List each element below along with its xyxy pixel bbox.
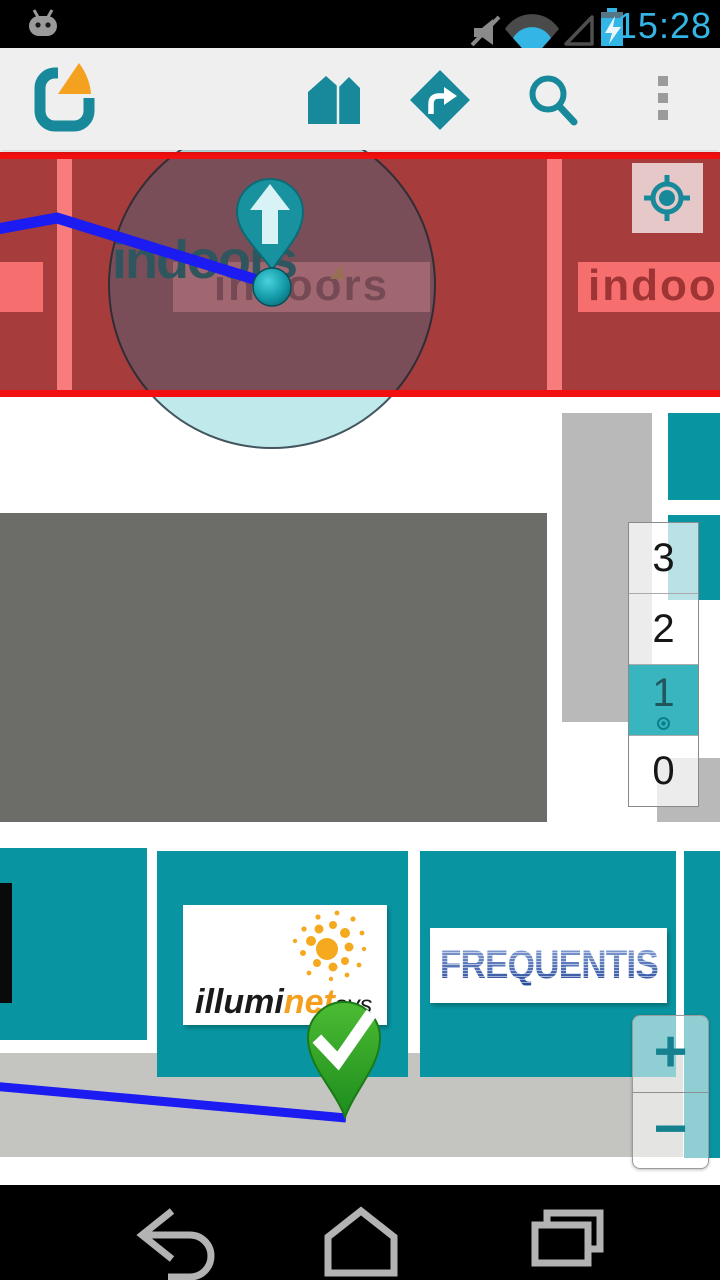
- zoom-out-button[interactable]: −: [633, 1093, 708, 1169]
- frequentis-logo-card: FREQUENTIS: [430, 928, 667, 1003]
- android-robot-icon: [29, 10, 57, 36]
- floor-item-1-selected[interactable]: 1: [629, 665, 698, 736]
- recents-icon[interactable]: [535, 1213, 600, 1263]
- illuminet-part-orange: net: [284, 983, 335, 1021]
- android-nav-bar: [0, 1185, 720, 1280]
- back-icon[interactable]: [142, 1211, 211, 1277]
- building-block-large: [0, 513, 547, 822]
- accuracy-circle-shade: [108, 152, 436, 397]
- room-teal-upper: [668, 413, 720, 500]
- venues-icon[interactable]: [308, 76, 360, 124]
- floor-item-0[interactable]: 0: [629, 736, 698, 806]
- home-icon[interactable]: [328, 1211, 394, 1273]
- illuminet-logo-card: illuminetsys: [183, 905, 387, 1025]
- map-red-building-band: indoors indoors indoors indoors: [0, 152, 720, 397]
- signal-icon: [566, 17, 592, 44]
- floor-label: 0: [652, 749, 674, 794]
- locate-button[interactable]: [632, 163, 703, 233]
- floor-label: 2: [652, 607, 674, 652]
- frequentis-logo-text: FREQUENTIS: [439, 943, 657, 988]
- floor-selector: 3 2 1 0: [628, 522, 699, 807]
- locate-icon: [632, 163, 703, 233]
- zoom-controls: + −: [632, 1015, 709, 1169]
- clock: 15:28: [617, 5, 712, 47]
- current-floor-dot-icon: [657, 717, 670, 730]
- indoor-map[interactable]: indoors indoors indoors indoors: [0, 150, 720, 1185]
- wifi-icon: [505, 14, 559, 48]
- floor-item-3[interactable]: 3: [629, 523, 698, 594]
- search-icon[interactable]: [533, 79, 575, 123]
- store-unit-1: [0, 848, 147, 1040]
- overflow-menu-icon[interactable]: [658, 76, 668, 120]
- app-logo: [40, 63, 91, 126]
- illuminet-part-suffix: sys: [335, 991, 373, 1019]
- app-toolbar: [0, 48, 720, 150]
- store-unit-1-fixture: [0, 883, 12, 1003]
- mute-icon: [472, 17, 499, 45]
- band-stripe: [547, 159, 562, 390]
- store-banner-left: indoors: [0, 262, 43, 312]
- store-banner-right: indoors: [578, 262, 720, 312]
- floor-item-2[interactable]: 2: [629, 594, 698, 665]
- band-stripe: [57, 159, 72, 390]
- floor-label: 3: [652, 536, 674, 581]
- floor-label: 1: [652, 671, 674, 716]
- status-bar: 15:28: [0, 0, 720, 48]
- illuminet-part-black: illumi: [195, 983, 284, 1021]
- illuminet-logo-text: illuminetsys: [195, 983, 372, 1022]
- status-bar-icons: [0, 0, 720, 48]
- zoom-in-button[interactable]: +: [633, 1016, 708, 1093]
- directions-icon[interactable]: [410, 70, 470, 130]
- phone-screen: 15:28: [0, 0, 720, 1280]
